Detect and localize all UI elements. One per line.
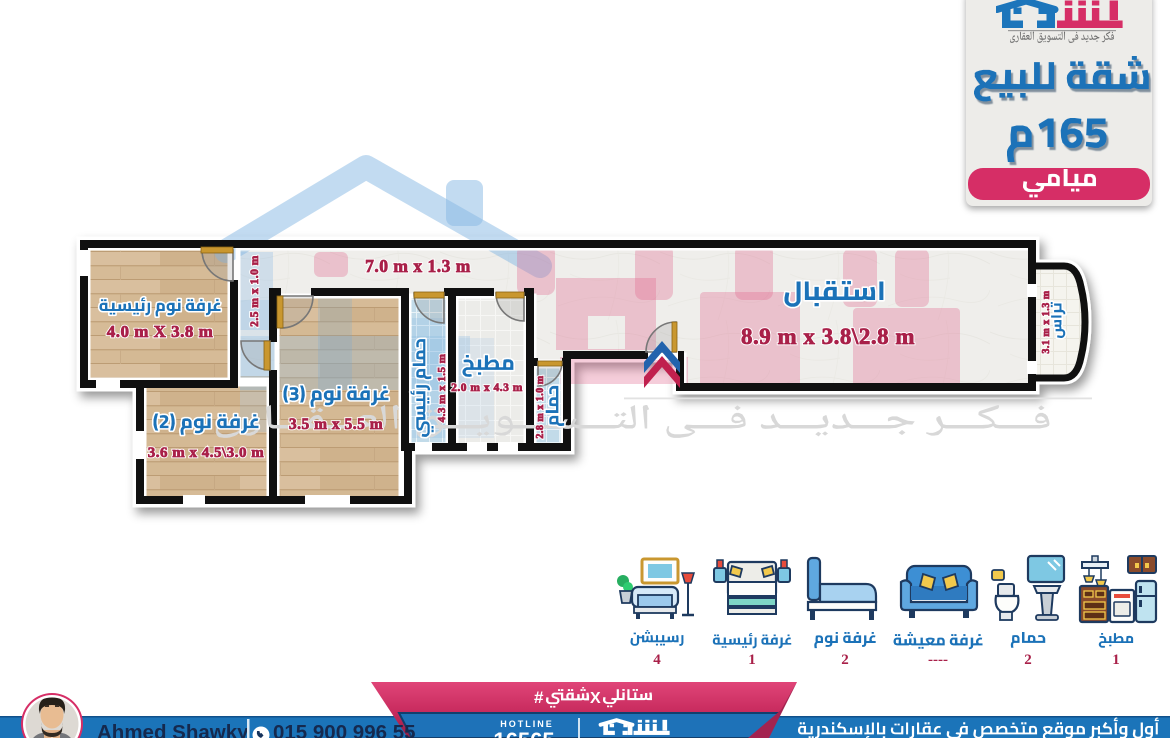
svg-text:X: X (590, 690, 601, 707)
svg-text:015 900 996 55: 015 900 996 55 (273, 721, 416, 738)
svg-text:#: # (534, 688, 544, 707)
svg-text:Ahmed Shawky: Ahmed Shawky (97, 721, 249, 738)
svg-text:16565: 16565 (493, 728, 554, 738)
